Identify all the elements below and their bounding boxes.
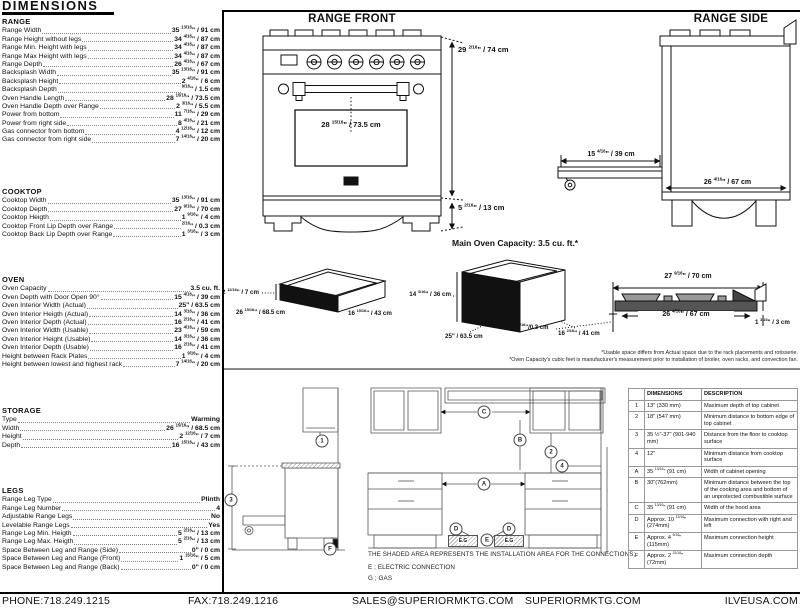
table-dim-cell: 35 ½"-37" (901-940 mm) <box>645 430 702 448</box>
dotted-leader <box>85 134 174 135</box>
spec-label: Backsplash Width <box>2 69 56 77</box>
dotted-leader <box>48 203 171 204</box>
oven-box-width-dim: 25" / 63.5 cm <box>445 333 483 340</box>
dotted-leader <box>123 366 174 367</box>
install-marker-d: D <box>503 523 516 536</box>
dotted-leader <box>91 341 173 342</box>
section-header: STORAGE <box>2 407 220 415</box>
spec-label: Cooktop Back Lip Depth over Range <box>2 231 112 239</box>
spec-row: Range Leg Number4 <box>2 504 220 512</box>
spec-label: Backsplash Depth <box>2 86 57 94</box>
footer-website[interactable]: SUPERIORMKTG.COM <box>525 595 641 607</box>
dotted-leader <box>57 75 171 76</box>
dotted-leader <box>73 535 177 536</box>
spec-value: 34 4/16" / 87 cm <box>174 36 220 44</box>
dotted-leader <box>119 552 191 553</box>
spec-label: Oven Depth with Door Open 90° <box>2 294 100 302</box>
dotted-leader <box>58 92 181 93</box>
spec-label: Space Between Leg and Range (Side) <box>2 547 118 555</box>
spec-row: Height between lowest and highest rack7 … <box>2 361 220 369</box>
table-desc-cell: Maximum connection height <box>702 532 798 550</box>
spec-label: Depth <box>2 442 20 450</box>
spec-value: 35 13/16" / 91 cm <box>172 197 220 205</box>
storage-drawer-drawing <box>262 269 385 312</box>
drawer-height-dim: 2 12/16" / 7 cm <box>222 289 259 296</box>
main-oven-capacity-heading: Main Oven Capacity: 3.5 cu. ft.* <box>452 238 578 248</box>
spec-label: Height between lowest and highest rack <box>2 361 122 369</box>
table-desc-cell: Width of cabinet opening <box>702 466 798 478</box>
spec-label: Oven Capacity <box>2 285 47 293</box>
spec-value: 9/16" / 1.5 cm <box>182 86 220 94</box>
spec-label: Range Leg Number <box>2 505 61 513</box>
table-row: 113" (330 mm)Maximum depth of top cabine… <box>629 400 798 412</box>
spec-label: Cooktop Depth <box>2 206 47 214</box>
spec-value: 34 4/16" / 87 cm <box>174 44 220 52</box>
table-header-cell: DIMENSIONS <box>645 389 702 401</box>
cooktop-profile-drawing <box>556 282 766 332</box>
dotted-leader <box>67 125 177 126</box>
spec-value: 23 4/16" / 59 cm <box>174 327 220 335</box>
dotted-leader <box>90 350 173 351</box>
shaded-box-label: E.G <box>504 538 515 544</box>
table-ref-cell: 4 <box>629 448 645 466</box>
spec-value: 11 7/16" / 29 cm <box>175 111 220 119</box>
table-ref-cell: F <box>629 551 645 569</box>
install-marker-b: B <box>514 434 527 447</box>
spec-row: Range Leg TypePlinth <box>2 496 220 504</box>
dotted-leader <box>43 66 173 67</box>
spec-row: Space Between Leg and Range (Back)0" / 0… <box>2 563 220 571</box>
install-marker-2: 2 <box>545 446 558 459</box>
legend-gas: G ; GAS <box>368 575 392 582</box>
dotted-leader <box>20 430 165 431</box>
install-marker-f: F <box>324 543 337 556</box>
spec-value: 34 4/16" / 87 cm <box>174 53 220 61</box>
shaded-connection-box: E.G <box>448 535 478 547</box>
spec-value: Yes <box>208 522 220 530</box>
install-marker-e: E <box>481 534 494 547</box>
range-front-drawing <box>263 30 463 232</box>
spec-label: Cooktop Heigth <box>2 214 49 222</box>
legend-electric: E ; ELECTRIC CONNECTION <box>368 564 455 571</box>
spec-value: 4 <box>216 505 220 513</box>
spec-label: Gas connector from right side <box>2 136 91 144</box>
spec-label: Range Leg Min. Heigth <box>2 530 72 538</box>
table-dim-cell: 30"(762mm) <box>645 478 702 503</box>
spec-label: Type <box>2 416 17 424</box>
spec-value: 5 2/16" / 13 cm <box>178 538 220 546</box>
dotted-leader <box>73 519 210 520</box>
footer-email[interactable]: SALES@SUPERIORMKTG.COM <box>352 595 514 607</box>
table-row: C35 13/16" (91 cm)Width of the hood area <box>629 503 798 515</box>
spec-label: Levelable Range Legs <box>2 522 70 530</box>
range-side-drawing <box>558 20 796 226</box>
dotted-leader <box>100 108 175 109</box>
install-marker-d: D <box>450 523 463 536</box>
dotted-leader <box>92 142 174 143</box>
dotted-leader <box>113 236 180 237</box>
table-row: FApprox. 2 13/16" (72mm)Maximum connecti… <box>629 551 798 569</box>
dotted-leader <box>48 211 173 212</box>
spec-label: Power from right side <box>2 120 66 128</box>
dotted-leader <box>74 544 177 545</box>
spec-row: Oven Depth with Door Open 90°15 4/16" / … <box>2 293 220 301</box>
table-ref-cell: D <box>629 514 645 532</box>
cooktop-inner-dim: 26 4/16" / 67 cm <box>638 311 734 318</box>
dimensions-table: DIMENSIONSDESCRIPTION113" (330 mm)Maximu… <box>628 388 798 569</box>
table-ref-cell: 1 <box>629 400 645 412</box>
table-ref-cell: 2 <box>629 412 645 430</box>
installation-drawing <box>228 388 607 553</box>
spec-row: Gas connector from right side7 14/16" / … <box>2 136 220 144</box>
spec-label: Oven Interior Depth (Actual) <box>2 319 87 327</box>
oven-interior-drawing <box>453 260 575 332</box>
dotted-leader <box>50 220 181 221</box>
footnote-oven-capacity: *Oven Capacity's cubic feet is manufactu… <box>453 357 798 363</box>
cooktop-front-lip-dim: 2/16"/0.3 cm <box>518 325 548 331</box>
range-front-handle-dim: 28 15/16" / 73.5 cm <box>303 120 399 129</box>
table-row: A35 13/16" (91 cm)Width of cabinet openi… <box>629 466 798 478</box>
spec-row: Depth16 15/16" / 43 cm <box>2 441 220 449</box>
table-dim-cell: Approx. 10 13/16" (274mm) <box>645 514 702 532</box>
spec-value: 14 3/16" / 36 cm <box>174 336 220 344</box>
dotted-leader <box>114 228 181 229</box>
section-header: LEGS <box>2 487 220 495</box>
cooktop-back-lip-dim: 1 3/16" / 3 cm <box>755 319 790 326</box>
range-side-title: RANGE SIDE <box>671 13 791 25</box>
range-front-height-dim: 29 2/16" / 74 cm <box>458 45 509 54</box>
table-dim-cell: 18" (547 mm) <box>645 412 702 430</box>
spec-value: 28 15/16" / 73.5 cm <box>166 95 220 103</box>
top-rule <box>222 10 800 12</box>
range-front-leg-dim: 5 2/16" / 13 cm <box>458 203 504 212</box>
install-marker-1: 1 <box>316 435 329 448</box>
spec-table: DIMENSIONSDESCRIPTION113" (330 mm)Maximu… <box>628 388 798 569</box>
dotted-leader <box>88 358 180 359</box>
install-marker-a: A <box>478 478 491 491</box>
spec-label: Oven Interior Height (Usable) <box>2 336 90 344</box>
install-marker-c: C <box>478 406 491 419</box>
drawer-depth-dim: 16 15/16" / 43 cm <box>348 310 392 317</box>
spec-label: Oven Interior Heigth (Actual) <box>2 311 88 319</box>
spec-row: Adjustable Range LegsNo <box>2 513 220 521</box>
dotted-leader <box>59 83 180 84</box>
table-dim-cell: 13" (330 mm) <box>645 400 702 412</box>
dotted-leader <box>88 50 174 51</box>
table-dim-cell: Approx. 2 13/16" (72mm) <box>645 551 702 569</box>
dotted-leader <box>65 100 165 101</box>
spec-label: Backsplash Height <box>2 78 58 86</box>
table-dim-cell: 35 13/16" (91 cm) <box>645 466 702 478</box>
table-desc-cell: Minimum distance from cooktop surface <box>702 448 798 466</box>
spec-section-cooktop: COOKTOPCooktop Width35 13/16" / 91 cmCoo… <box>2 188 220 239</box>
install-marker-4: 4 <box>556 460 569 473</box>
spec-label: Space Between Leg and Range (Back) <box>2 564 120 572</box>
spec-value: 7 14/16" / 20 cm <box>176 136 220 144</box>
spec-label: Oven Interior Depth (Usable) <box>2 344 89 352</box>
spec-section-legs: LEGSRange Leg TypePlinthRange Leg Number… <box>2 487 220 572</box>
range-side-door-dim: 15 4/16" / 39 cm <box>565 151 657 158</box>
dotted-leader <box>101 299 174 300</box>
spec-value: 16 2/16" / 41 cm <box>174 344 220 352</box>
spec-value: 15 4/16" / 39 cm <box>174 294 220 302</box>
install-marker-3: 3 <box>225 494 238 507</box>
table-row: 412"Minimum distance from cooktop surfac… <box>629 448 798 466</box>
spec-value: 16 15/16" / 43 cm <box>172 442 220 450</box>
spec-label: Range Depth <box>2 61 42 69</box>
dotted-leader <box>53 502 200 503</box>
spec-label: Adjustable Range Legs <box>2 513 72 521</box>
footnote-usable-space: *Usable space differs from Actual space … <box>455 350 798 356</box>
table-row: 335 ½"-37" (901-940 mm)Distance from the… <box>629 430 798 448</box>
table-row: B30"(762mm)Minimum distance between the … <box>629 478 798 503</box>
table-desc-cell: Distance from the floor to cooktop surfa… <box>702 430 798 448</box>
range-front-title: RANGE FRONT <box>292 13 412 25</box>
spec-value: 14 3/16" / 36 cm <box>174 311 220 319</box>
dotted-leader <box>82 41 173 42</box>
spec-label: Space Between Leg and Range (Front) <box>2 555 120 563</box>
dotted-leader <box>89 333 173 334</box>
spec-value: 16 2/16" / 41 cm <box>174 319 220 327</box>
dotted-leader <box>121 569 191 570</box>
table-desc-cell: Minimum distance between the top of the … <box>702 478 798 503</box>
spec-value: 3.5 cu. ft. <box>191 285 220 293</box>
table-row: 218" (547 mm)Minimum distance to bottom … <box>629 412 798 430</box>
spec-label: Power from bottom <box>2 111 59 119</box>
spec-value: Plinth <box>201 496 220 504</box>
spec-label: Oven Handle Length <box>2 95 64 103</box>
dotted-leader <box>88 58 174 59</box>
drawer-width-dim: 26 15/16" / 68.5 cm <box>236 309 285 316</box>
spec-label: Oven Interior Width (Actual) <box>2 302 86 310</box>
table-desc-cell: Maximum depth of top cabinet <box>702 400 798 412</box>
dotted-leader <box>62 510 215 511</box>
spec-row: Space Between Leg and Range (Front)1 15/… <box>2 555 220 563</box>
table-desc-cell: Maximum connection depth <box>702 551 798 569</box>
spec-value: 1 3/16" / 3 cm <box>182 231 220 239</box>
spec-section-range: RANGERange Width35 13/16" / 91 cmRange H… <box>2 18 220 144</box>
spec-label: Range Height without legs <box>2 36 81 44</box>
table-ref-cell: C <box>629 503 645 515</box>
table-desc-cell: Width of the hood area <box>702 503 798 515</box>
dotted-leader <box>42 33 171 34</box>
footer-phone: PHONE:718.249.1215 <box>2 595 110 607</box>
footer-website-ilve[interactable]: ILVEUSA.COM <box>725 595 798 607</box>
dotted-leader <box>87 308 178 309</box>
spec-section-storage: STORAGETypeWarmingWidth26 15/16" / 68.5 … <box>2 407 220 450</box>
oven-box-depth-dim: 16 2/16" / 41 cm <box>558 330 600 337</box>
spec-label: Range Max Height with legs <box>2 53 87 61</box>
dotted-leader <box>48 291 190 292</box>
table-desc-cell: Minimum distance to bottom edge of top c… <box>702 412 798 430</box>
spec-section-oven: OVENOven Capacity3.5 cu. ft.Oven Depth w… <box>2 276 220 369</box>
spec-label: Oven Interior Width (Usable) <box>2 327 88 335</box>
spec-value: 0" / 0 cm <box>192 564 220 572</box>
table-row: EApprox. 4 9/16" (115mm)Maximum connecti… <box>629 532 798 550</box>
dotted-leader <box>121 561 178 562</box>
spec-row: Cooktop Back Lip Depth over Range1 3/16"… <box>2 231 220 239</box>
oven-box-height-dim: 14 3/16" / 36 cm <box>393 291 451 298</box>
spec-label: Height <box>2 433 22 441</box>
spec-label: Width <box>2 425 19 433</box>
spec-value: No <box>211 513 220 521</box>
column-divider <box>222 10 224 592</box>
cooktop-top-dim: 27 9/16" / 70 cm <box>643 273 733 280</box>
spec-label: Oven Handle Depth over Range <box>2 103 99 111</box>
table-row: DApprox. 10 13/16" (274mm)Maximum connec… <box>629 514 798 532</box>
dotted-leader <box>89 316 173 317</box>
footer-fax: FAX:718.249.1216 <box>188 595 278 607</box>
range-side-depth-dim: 26 4/16" / 67 cm <box>680 179 775 186</box>
installation-note: THE SHADED AREA REPRESENTS THE INSTALLAT… <box>368 551 635 558</box>
spec-label: Range Min. Height with legs <box>2 44 87 52</box>
spec-label: Cooktop Width <box>2 197 47 205</box>
spec-label: Gas connector from bottom <box>2 128 84 136</box>
table-header-row: DIMENSIONSDESCRIPTION <box>629 389 798 401</box>
spec-row: Range Leg Max. Heigth5 2/16" / 13 cm <box>2 538 220 546</box>
table-dim-cell: Approx. 4 9/16" (115mm) <box>645 532 702 550</box>
spec-row: Backsplash Depth9/16" / 1.5 cm <box>2 86 220 94</box>
spec-value: 1 15/16" / 5 cm <box>179 555 220 563</box>
shaded-connection-box: E.G <box>494 535 524 547</box>
table-ref-cell: E <box>629 532 645 550</box>
shaded-box-label: E.G <box>458 538 469 544</box>
spec-value: Warming <box>191 416 220 424</box>
table-ref-cell: 3 <box>629 430 645 448</box>
table-header-cell <box>629 389 645 401</box>
spec-value: 0" / 0 cm <box>192 547 220 555</box>
dotted-leader <box>21 447 171 448</box>
spec-label: Range Width <box>2 27 41 35</box>
footer-rule <box>0 592 800 594</box>
table-header-cell: DESCRIPTION <box>702 389 798 401</box>
dotted-leader <box>88 324 174 325</box>
spec-value: 7 14/16" / 20 cm <box>176 361 220 369</box>
spec-label: Range Leg Type <box>2 496 52 504</box>
spec-value: 27 9/16" / 70 cm <box>174 206 220 214</box>
table-dim-cell: 35 13/16" (91 cm) <box>645 503 702 515</box>
table-ref-cell: A <box>629 466 645 478</box>
table-desc-cell: Maximum connection with right and left <box>702 514 798 532</box>
spec-label: Cooktop Front Lip Depth over Range <box>2 223 113 231</box>
spec-row: TypeWarming <box>2 416 220 424</box>
spec-value: 35 13/16" / 91 cm <box>172 27 220 35</box>
table-dim-cell: 12" <box>645 448 702 466</box>
dotted-leader <box>60 117 173 118</box>
spec-label: Range Leg Max. Heigth <box>2 538 73 546</box>
section-header: OVEN <box>2 276 220 284</box>
spec-label: Height between Rack Plates <box>2 353 87 361</box>
page-title: DIMENSIONS <box>2 0 114 15</box>
dotted-leader <box>18 422 190 423</box>
dotted-leader <box>23 439 179 440</box>
table-ref-cell: B <box>629 478 645 503</box>
